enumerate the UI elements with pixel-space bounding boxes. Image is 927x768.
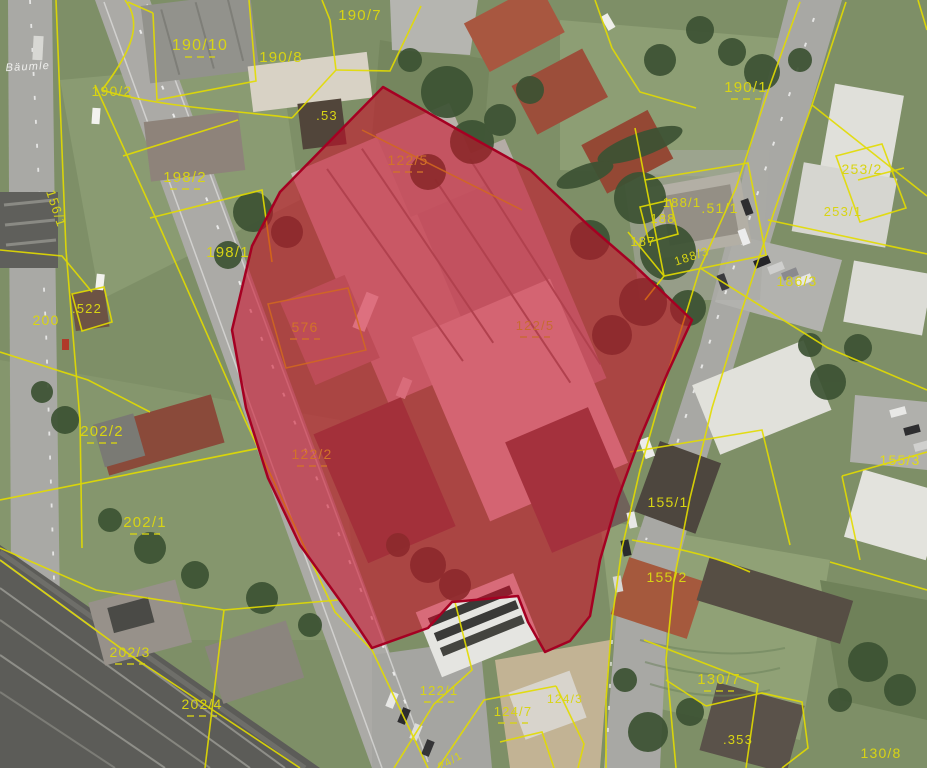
parcel-label: 188	[650, 211, 675, 226]
parcel-label: 200	[33, 312, 60, 328]
parcel-label: 253/2	[841, 161, 882, 177]
parcel-label: 155/1	[647, 494, 688, 510]
parcel-label: .353	[723, 732, 753, 747]
parcel-label: 190/10	[172, 37, 228, 54]
parcel-label: 190/8	[259, 49, 303, 66]
parcel-label: 155/2	[646, 569, 687, 585]
parcel-label: 124/3	[547, 692, 583, 706]
parcel-label: 122/5	[516, 318, 555, 333]
parcel-label: 202/2	[80, 423, 124, 440]
parcel-label: 190/1	[724, 79, 768, 96]
parcel-label: 198/1	[206, 244, 250, 261]
map-canvas: Bäumle190/2190/10190/7190/8.53122/5122/5…	[0, 0, 927, 768]
parcel-label: .53	[316, 108, 338, 123]
parcel-label: 122/5	[387, 152, 428, 168]
parcel-label: 202/3	[109, 644, 150, 660]
parcel-label: 202/1	[123, 514, 167, 531]
parcel-label: .51/1	[701, 200, 738, 216]
parcel-label: 188/1	[663, 195, 702, 210]
parcel-label: 190/2	[91, 83, 132, 99]
parcel-label: 190/7	[338, 7, 382, 24]
parcel-label: 155/3	[879, 452, 920, 468]
parcel-label: 130/8	[860, 745, 901, 761]
parcel-label: 122/2	[291, 446, 332, 462]
parcel-label: 576	[292, 319, 319, 335]
parcel-label: 122/1	[420, 683, 459, 698]
parcel-label: 253/1	[824, 204, 863, 219]
parcel-label: 130/7	[697, 671, 741, 688]
parcel-label: 202/4	[181, 696, 222, 712]
parcel-label: 187	[630, 234, 655, 249]
parcel-label: 186/3	[776, 273, 817, 289]
parcel-label: 198/2	[163, 169, 207, 186]
street-label: Bäumle	[5, 60, 50, 74]
parcel-label: .522	[72, 301, 102, 316]
parcel-label: 124/7	[494, 704, 533, 719]
aerial-map-view: Bäumle190/2190/10190/7190/8.53122/5122/5…	[0, 0, 927, 768]
